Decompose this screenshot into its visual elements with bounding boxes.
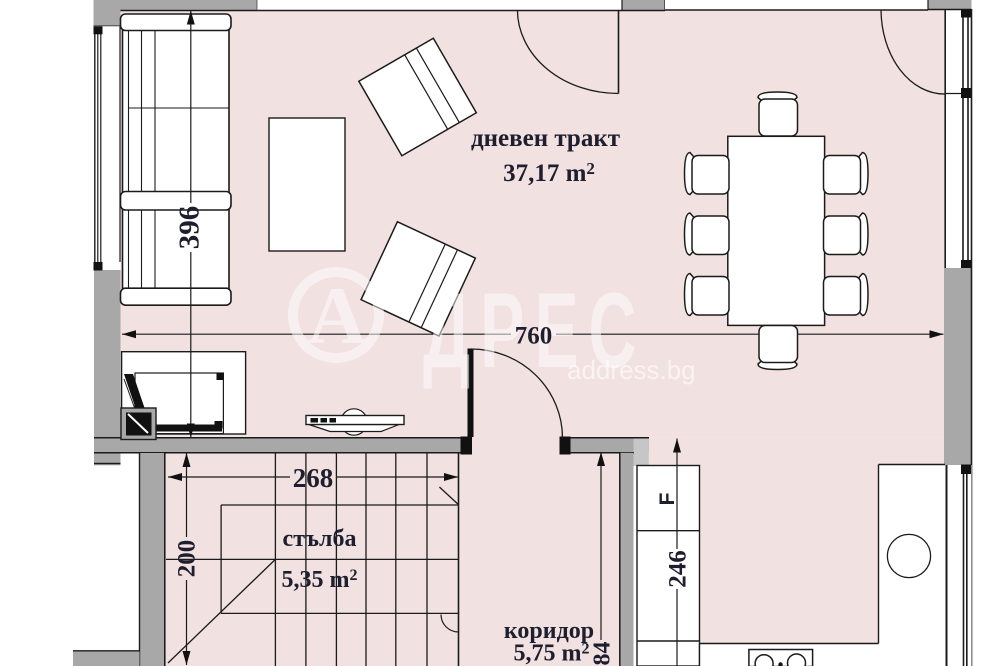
svg-text:address.bg: address.bg <box>567 355 696 385</box>
svg-text:268: 268 <box>293 463 334 493</box>
svg-text:37,17 m2: 37,17 m2 <box>503 159 595 187</box>
svg-text:396: 396 <box>174 206 206 250</box>
svg-text:5,75 m2: 5,75 m2 <box>514 641 590 666</box>
svg-text:5,35 m2: 5,35 m2 <box>282 567 358 593</box>
svg-text:F: F <box>656 492 679 505</box>
svg-text:200: 200 <box>174 540 201 578</box>
svg-text:стълба: стълба <box>283 526 357 552</box>
svg-text:дневен тракт: дневен тракт <box>471 125 620 152</box>
svg-text:760: 760 <box>515 323 553 350</box>
svg-text:84: 84 <box>590 642 616 666</box>
svg-text:А: А <box>307 270 366 361</box>
svg-text:246: 246 <box>664 550 691 588</box>
